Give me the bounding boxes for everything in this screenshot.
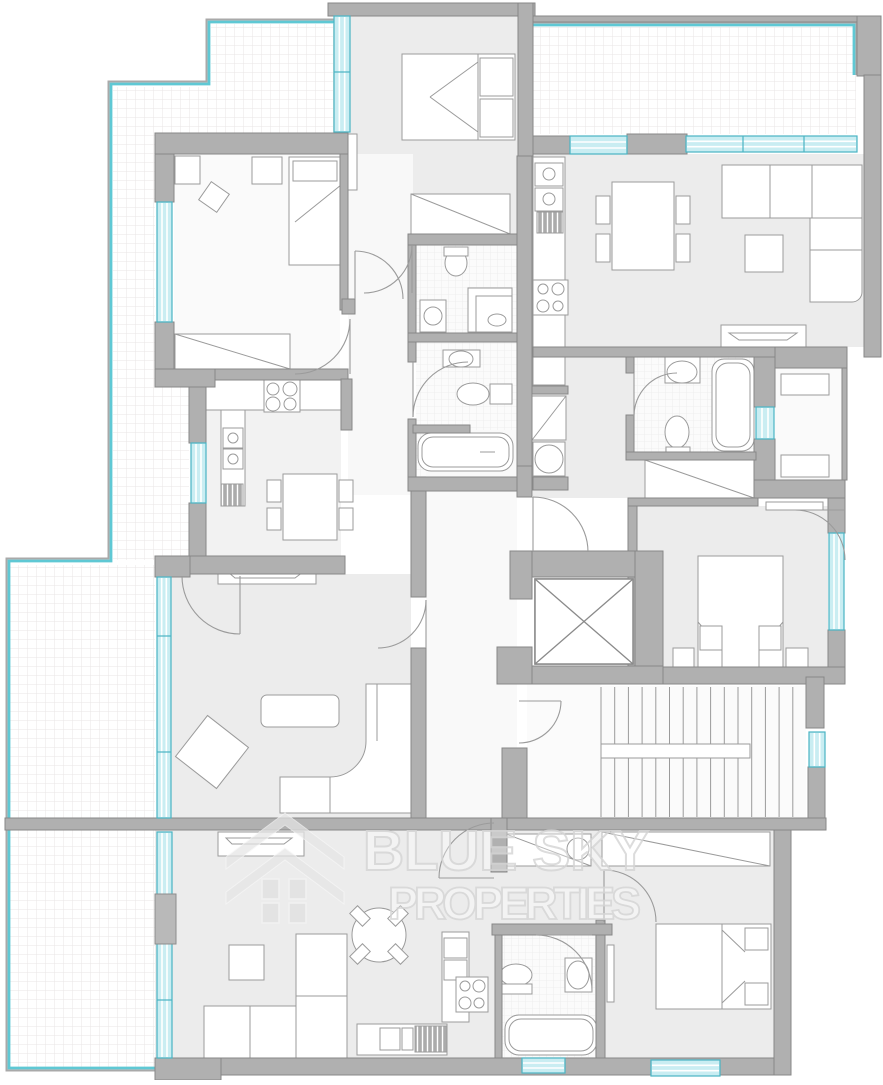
svg-text:BLUE SKY: BLUE SKY (363, 819, 649, 883)
svg-text:PROPERTIES: PROPERTIES (388, 878, 641, 929)
